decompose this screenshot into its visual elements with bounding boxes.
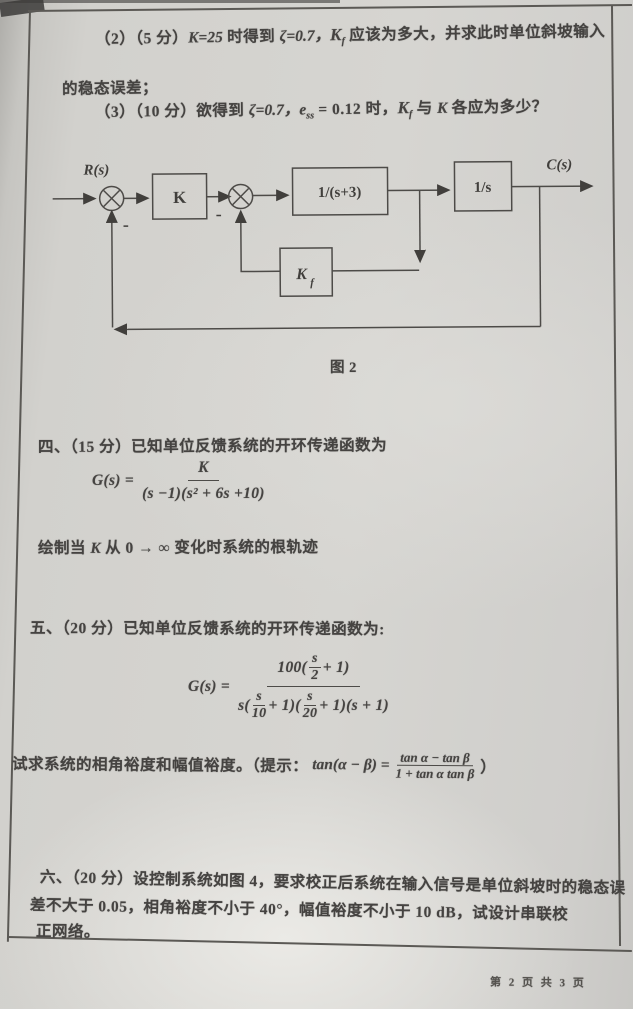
plant-block-label: 1/(s+3) (318, 185, 362, 201)
text-segment: 正网络。 (36, 923, 100, 941)
math-kf: K (397, 98, 409, 117)
problem2-line1: （2）（5 分）K=25 时得到 ζ=0.7，Kf 应该为多大，并求此时单位斜坡… (95, 19, 606, 51)
den-segment: + 1)(s + 1) (319, 696, 389, 715)
outer-feedback-return-line (112, 212, 113, 327)
problem4-heading: 四、（15 分）已知单位反馈系统的开环传递函数为 (38, 433, 387, 457)
inner-feedback-line (332, 270, 419, 271)
text-segment: 的稳态误差； (62, 79, 158, 98)
text-segment: （3）（10 分）欲得到 (95, 102, 249, 121)
problem6-line1: 六、（20 分）设控制系统如图 4，要求校正后系统在输入信号是单位斜坡时的稳态误 (40, 865, 626, 898)
text-segment: 各应为多少？ (447, 98, 548, 116)
inner-feedback-return-line (241, 212, 280, 271)
small-frac-bottom: 2 (311, 668, 318, 683)
outer-feedback-pickoff-line (540, 186, 541, 326)
text-segment: 绘制当 (38, 540, 90, 557)
text-segment: 时得到 (223, 28, 280, 46)
text-segment: 从 0 → ∞ 变化时系统的根轨迹 (101, 539, 319, 557)
summing-junction-2-cross (233, 188, 249, 204)
den-segment: s( (238, 696, 250, 715)
text-segment: 与 (412, 100, 437, 117)
fraction-numerator: 100(s2 + 1) (267, 652, 359, 687)
problem5-heading: 五、（20 分）已知单位反馈系统的开环传递函数为: (30, 616, 385, 639)
math-kf: K (330, 25, 342, 44)
page-frame-right (611, 6, 621, 946)
text-segment: 六、（20 分）设控制系统如图 4，要求校正后系统在输入信号是单位斜坡时的稳态误 (40, 869, 626, 897)
inner-feedback-minus-sign: - (216, 204, 222, 224)
math-k: K (90, 540, 100, 557)
text-segment: （2）（5 分） (95, 30, 188, 48)
num-tail: + 1) (323, 658, 350, 677)
problem6-line2: 差不大于 0.05，相角裕度不小于 40°，幅值裕度不小于 10 dB，试设计串… (30, 893, 569, 924)
math-ess-subscript: ss (306, 110, 314, 121)
kf-block-label: K (295, 266, 308, 283)
fraction-denominator: (s −1)(s² + 6s +10) (142, 481, 265, 503)
outer-feedback-minus-sign: - (123, 214, 129, 234)
input-label: R(s) (82, 162, 109, 178)
summing-junction-1-cross (104, 190, 120, 206)
gain-block-k-label: K (173, 188, 187, 207)
num-coeff: 100( (277, 658, 307, 677)
page-frame-top (28, 4, 632, 12)
text-segment: ） (480, 755, 496, 777)
math-tan-identity-lhs: tan(α − β) = (312, 756, 389, 775)
small-frac-bottom: 20 (303, 706, 318, 721)
heading-text: 五、（20 分）已知单位反馈系统的开环传递函数为: (30, 620, 385, 638)
problem5-note: 试求系统的相角裕度和幅值裕度。（提示： tan(α − β) = tan α −… (12, 748, 497, 780)
fraction: 100(s2 + 1) s(s10 + 1)(s20 + 1)(s + 1) (238, 652, 389, 721)
caption-text: 图 2 (330, 360, 357, 376)
text-segment: 应该为多大，并求此时单位斜坡输入 (345, 23, 606, 44)
formula-lhs: G(s) = (92, 472, 134, 490)
math-zeta: ζ=0.7， (279, 27, 330, 45)
output-label: C(s) (546, 157, 572, 173)
small-fraction-s-over-10: s10 (252, 690, 267, 721)
small-fraction-s-over-2: s2 (309, 652, 321, 683)
small-frac-bottom: 10 (252, 706, 267, 721)
text-segment: 试求系统的相角裕度和幅值裕度。（提示： (12, 752, 308, 776)
outer-feedback-line (117, 326, 541, 329)
kf-block-subscript: f (310, 277, 315, 289)
integrator-block-label: 1/s (474, 180, 492, 196)
small-frac-bottom: 1 + tan α tan β (396, 766, 475, 781)
page-frame-bottom (8, 936, 632, 952)
small-frac-top: s (253, 690, 265, 706)
scan-edge-artifact (0, 0, 340, 3)
math-k: K (437, 100, 448, 117)
scanned-exam-page: （2）（5 分）K=25 时得到 ζ=0.7，Kf 应该为多大，并求此时单位斜坡… (0, 0, 633, 1009)
text-segment: = 0.12 时， (314, 100, 398, 118)
small-frac-top: s (304, 690, 316, 706)
figure2-caption: 图 2 (330, 356, 357, 377)
problem3-line: （3）（10 分）欲得到 ζ=0.7，ess = 0.12 时，Kf 与 K 各… (95, 94, 548, 124)
problem6-line3: 正网络。 (36, 919, 100, 942)
page-number-footer: 第 2 页 共 3 页 (490, 973, 586, 990)
math-k-value: K=25 (188, 29, 223, 47)
formula-lhs: G(s) = (188, 678, 230, 696)
output-signal-line (512, 186, 591, 187)
heading-text: 四、（15 分）已知单位反馈系统的开环传递函数为 (38, 437, 387, 456)
den-segment: + 1)( (268, 696, 300, 715)
text-segment: 差不大于 0.05，相角裕度不小于 40°，幅值裕度不小于 10 dB，试设计串… (30, 897, 569, 923)
tan-identity-fraction: tan α − tan β 1 + tan α tan β (396, 751, 475, 781)
problem5-transfer-function: G(s) = 100(s2 + 1) s(s10 + 1)(s20 + 1)(s… (188, 652, 389, 721)
fraction: K (s −1)(s² + 6s +10) (142, 458, 265, 504)
block-diagram-figure2: R(s) C(s) K 1/(s+3) 1/s K f - - (27, 145, 608, 349)
footer-text: 第 2 页 共 3 页 (490, 976, 586, 989)
fraction-denominator: s(s10 + 1)(s20 + 1)(s + 1) (238, 687, 389, 721)
problem2-line2: 的稳态误差； (62, 75, 158, 99)
math-zeta: ζ=0.7， (249, 102, 300, 120)
problem4-transfer-function: G(s) = K (s −1)(s² + 6s +10) (92, 458, 265, 504)
small-frac-top: s (309, 652, 321, 668)
problem4-note: 绘制当 K 从 0 → ∞ 变化时系统的根轨迹 (38, 535, 318, 558)
small-fraction-s-over-20: s20 (303, 690, 318, 721)
fraction-numerator: K (188, 458, 219, 481)
small-frac-top: tan α − tan β (397, 751, 473, 767)
